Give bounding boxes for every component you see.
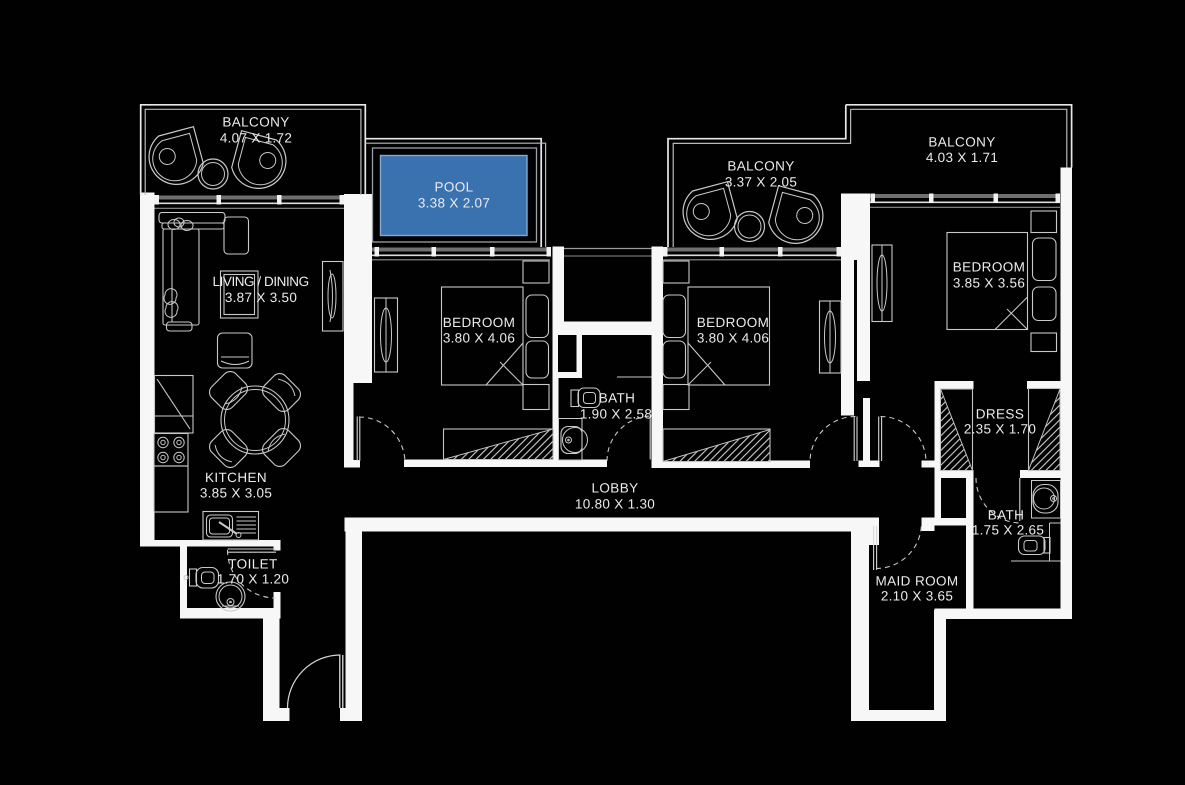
svg-text:LOBBY: LOBBY [591, 481, 638, 496]
svg-text:1.75 X 2.65: 1.75 X 2.65 [972, 523, 1044, 538]
svg-text:LIVING / DINING: LIVING / DINING [213, 274, 310, 289]
svg-text:BALCONY: BALCONY [928, 135, 995, 150]
svg-text:1.90 X 2.58: 1.90 X 2.58 [580, 407, 652, 422]
svg-text:BEDROOM: BEDROOM [697, 315, 770, 330]
svg-text:MAID ROOM: MAID ROOM [875, 574, 958, 589]
svg-text:KITCHEN: KITCHEN [205, 470, 267, 485]
svg-text:3.87 X 3.50: 3.87 X 3.50 [225, 290, 297, 305]
svg-text:BEDROOM: BEDROOM [443, 315, 516, 330]
svg-text:POOL: POOL [434, 180, 473, 195]
svg-text:2.35 X 1.70: 2.35 X 1.70 [964, 422, 1036, 437]
svg-text:10.80 X 1.30: 10.80 X 1.30 [575, 497, 655, 512]
svg-text:3.80 X 4.06: 3.80 X 4.06 [697, 331, 769, 346]
svg-text:1.70 X 1.20: 1.70 X 1.20 [217, 572, 289, 587]
svg-text:3.85 X 3.05: 3.85 X 3.05 [200, 486, 272, 501]
svg-text:BALCONY: BALCONY [727, 159, 794, 174]
svg-text:3.85 X 3.56: 3.85 X 3.56 [953, 276, 1025, 291]
svg-text:TOILET: TOILET [228, 557, 277, 572]
svg-text:BALCONY: BALCONY [222, 115, 289, 130]
svg-text:4.03 X 1.71: 4.03 X 1.71 [926, 150, 998, 165]
svg-text:3.37 X 2.05: 3.37 X 2.05 [725, 175, 797, 190]
svg-text:BEDROOM: BEDROOM [953, 260, 1026, 275]
svg-text:BATH: BATH [599, 391, 636, 406]
svg-text:BATH: BATH [988, 508, 1025, 523]
svg-text:4.07 X 1.72: 4.07 X 1.72 [220, 131, 292, 146]
svg-text:2.10 X 3.65: 2.10 X 3.65 [881, 589, 953, 604]
svg-text:3.80 X 4.06: 3.80 X 4.06 [443, 331, 515, 346]
svg-text:3.38 X 2.07: 3.38 X 2.07 [418, 196, 490, 211]
svg-text:DRESS: DRESS [976, 407, 1025, 422]
